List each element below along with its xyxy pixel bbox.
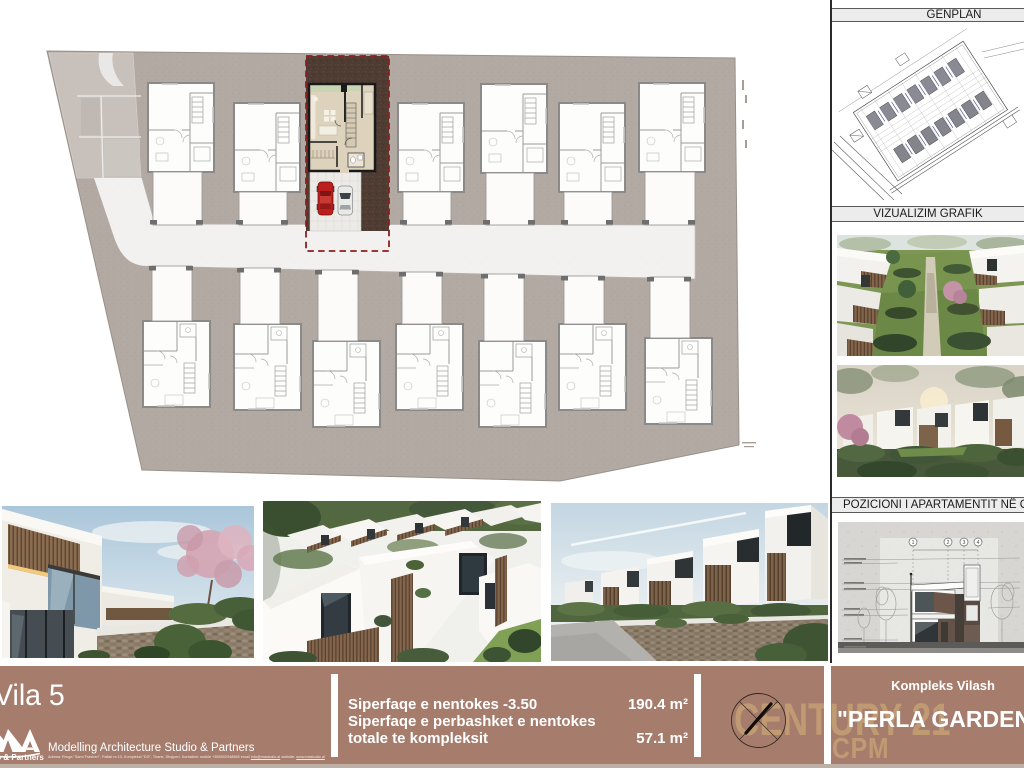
svg-text:4: 4 (977, 540, 980, 546)
svg-text:1: 1 (912, 540, 915, 546)
svg-text:3: 3 (963, 540, 966, 546)
svg-text:2: 2 (947, 540, 950, 546)
